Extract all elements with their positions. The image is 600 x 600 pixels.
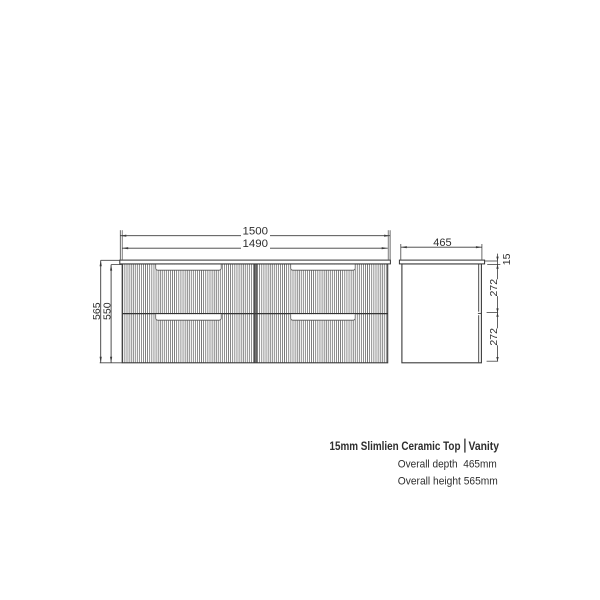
- svg-text:Overall height 565mm: Overall height 565mm: [398, 475, 498, 487]
- svg-text:15: 15: [501, 253, 513, 265]
- svg-text:550: 550: [101, 302, 113, 320]
- svg-text:Overall depth 465mm: Overall depth 465mm: [398, 459, 497, 471]
- svg-text:1490: 1490: [243, 238, 269, 250]
- svg-text:465: 465: [433, 237, 451, 249]
- svg-text:272: 272: [488, 279, 500, 297]
- svg-text:15mm Slimlien Ceramic Top: 15mm Slimlien Ceramic Top: [330, 439, 461, 453]
- svg-text:Vanity: Vanity: [469, 439, 500, 453]
- svg-text:1500: 1500: [243, 226, 269, 238]
- svg-text:272: 272: [488, 328, 500, 346]
